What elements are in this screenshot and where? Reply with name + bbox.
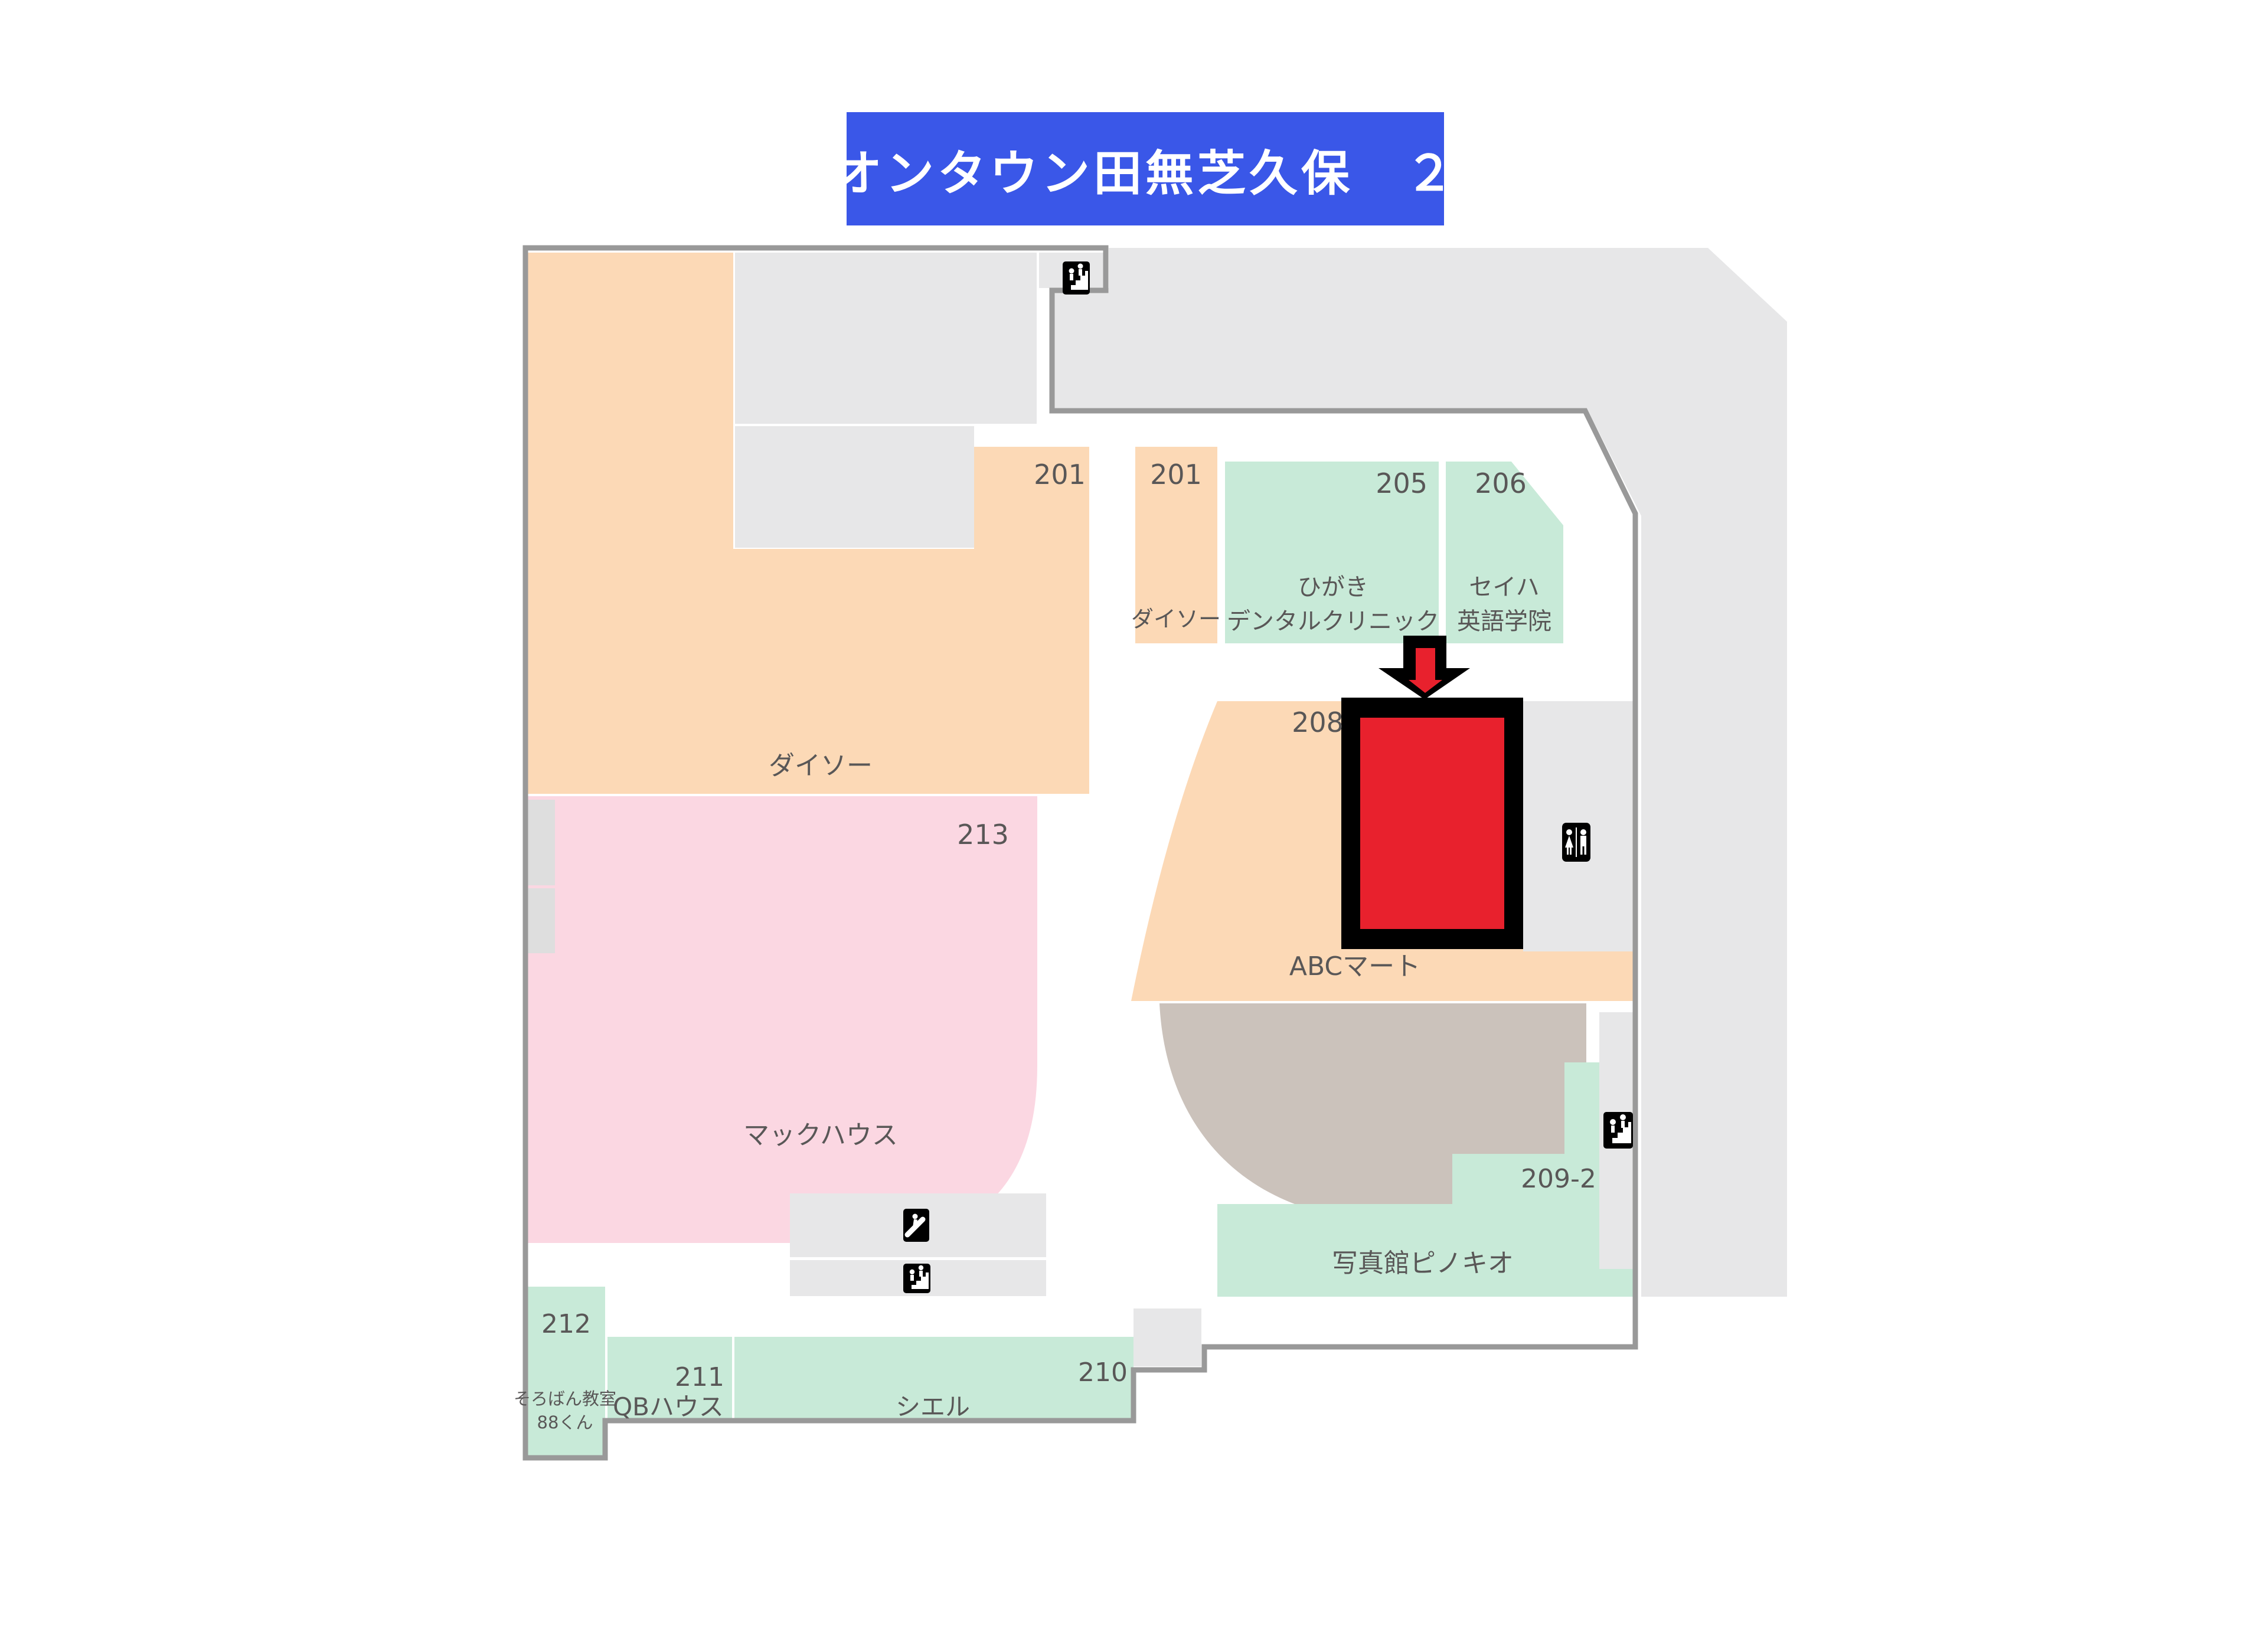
restroom-icon [1562,823,1590,862]
left-edge-room-1 [527,800,555,885]
store-label-ciel: シエル [896,1392,970,1421]
stairs-right-icon [1603,1112,1633,1149]
unit-number-201-hall: 201 [1034,459,1086,490]
store-area-machouse [527,796,1037,1243]
escalator-icon [903,1209,929,1242]
store-label-206-line2: 英語学院 [1457,608,1551,635]
unit-number-209-2: 209-2 [1521,1164,1596,1194]
unit-number-205: 205 [1376,467,1428,499]
store-label-pinocchio: 写真館ピノキオ [1332,1248,1514,1278]
store-label-abcmart: ABCマート [1289,951,1420,982]
store-label-daiso-201: ダイソー [1131,606,1221,632]
store-label-205-line1: ひがき [1298,574,1368,601]
store-label-212-line1: そろばん教室 [514,1389,616,1409]
unit-number-210: 210 [1078,1357,1128,1388]
store-label-212-line2: 88くん [537,1412,593,1432]
store-label-qbhouse: QBハウス [613,1392,724,1421]
stairs-top-icon [1063,261,1090,295]
store-label-machouse: マックハウス [743,1120,898,1150]
store-label-205-line2: デンタルクリニック [1227,608,1439,635]
unit-number-201-daiso: 201 [1150,459,1202,490]
unit-number-212: 212 [541,1309,591,1339]
stairs-center-icon [903,1264,930,1293]
floor-map-page: イオンタウン田無芝久保 ２Ｆ [0,0,2267,1652]
unit-number-213: 213 [957,819,1009,850]
backroom-second [735,426,974,548]
store-label-206-line1: セイハ [1469,574,1539,601]
floor-map: 201 201 ダイソー 205 ひがき デンタルクリニック 206 セイハ 英… [0,0,2267,1652]
small-gray-room [1133,1308,1201,1366]
unit-number-211: 211 [675,1362,724,1392]
left-edge-room-2 [527,888,555,953]
backroom-top-left [735,253,1037,424]
store-label-daiso-main: ダイソー [769,751,873,781]
unit-number-206: 206 [1475,467,1527,499]
highlighted-store-marker [1360,718,1504,929]
unit-number-208: 208 [1292,706,1344,738]
